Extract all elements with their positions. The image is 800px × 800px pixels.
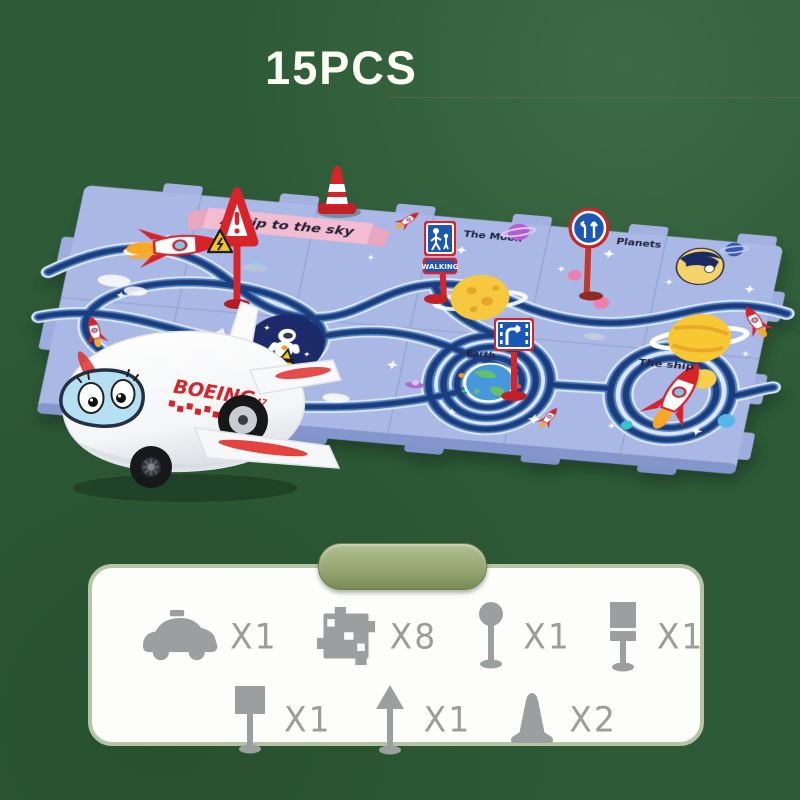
arrow-sign-icon xyxy=(370,683,410,755)
parts-row-1: X1 X8 xyxy=(134,598,700,674)
track-tile-icon xyxy=(316,606,376,666)
plane-eyes xyxy=(61,370,143,426)
parts-list-panel: X1 X8 xyxy=(88,564,704,746)
walking-signpost-icon xyxy=(603,600,643,672)
round-sign-qty: X1 xyxy=(523,616,571,657)
cone-icon xyxy=(507,689,557,749)
walking-sign-text: WALKING xyxy=(422,263,459,271)
traffic-cone xyxy=(317,166,361,218)
parts-row-2: X1 X1 X2 xyxy=(230,682,700,756)
square-sign-qty: X1 xyxy=(284,699,332,740)
walking-signpost-qty: X1 xyxy=(657,616,705,657)
tile-qty: X8 xyxy=(390,616,438,657)
plane-shadow xyxy=(73,474,297,502)
cone-qty: X2 xyxy=(569,699,617,740)
product-photo-stage: 15PCS xyxy=(0,0,800,800)
arrow-sign-qty: X1 xyxy=(424,699,472,740)
car-qty: X1 xyxy=(230,616,278,657)
plane-front-wheel xyxy=(130,446,172,488)
square-sign-icon xyxy=(230,684,270,754)
round-sign-icon xyxy=(473,601,509,671)
panel-tab xyxy=(318,543,487,590)
car-icon xyxy=(134,607,220,665)
